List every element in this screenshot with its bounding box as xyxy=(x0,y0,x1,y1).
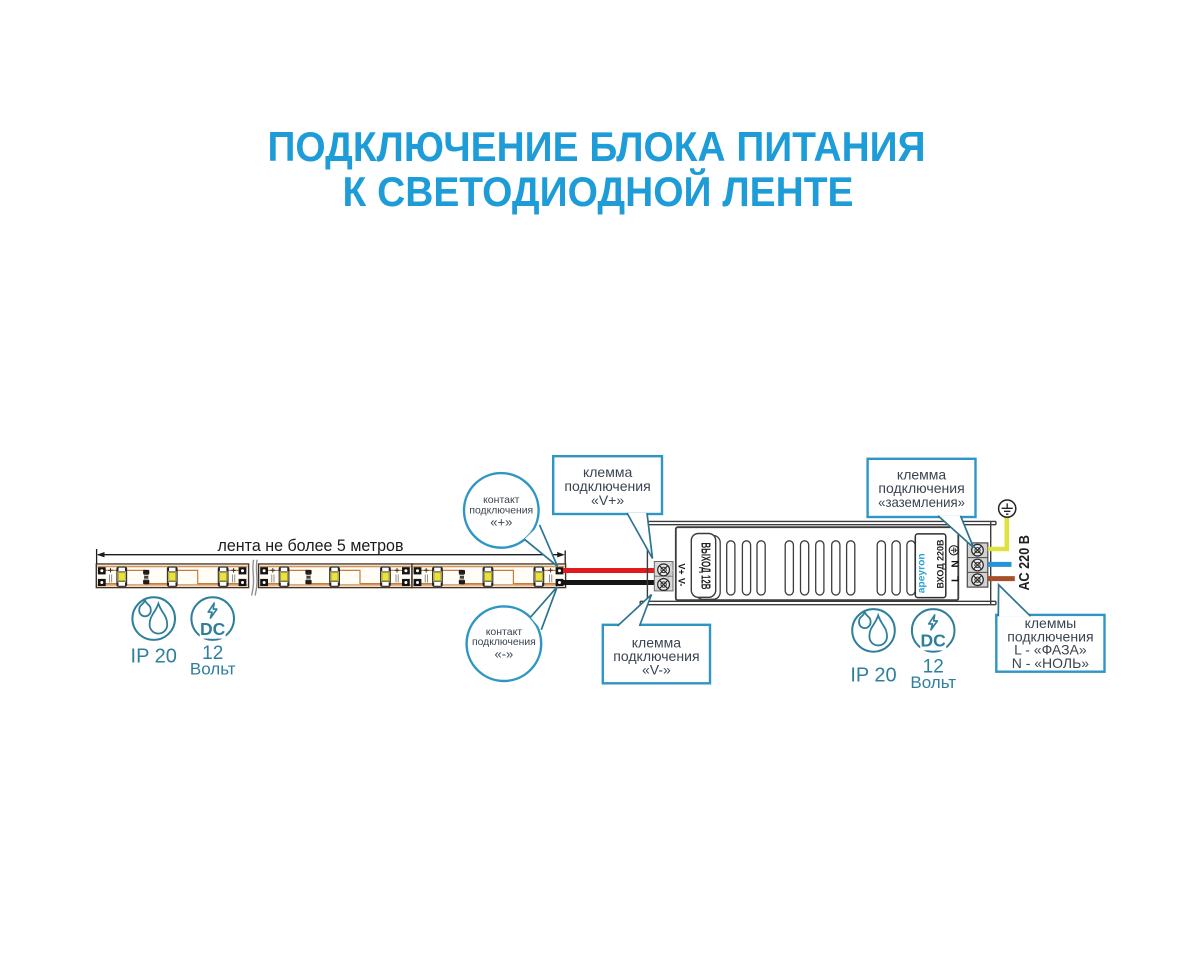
svg-text:ВЫХОД 12В: ВЫХОД 12В xyxy=(699,543,713,590)
svg-text:L: L xyxy=(950,576,961,582)
svg-text:«-»: «-» xyxy=(495,646,514,661)
svg-text:V+: V+ xyxy=(676,563,686,574)
svg-text:apeyron: apeyron xyxy=(916,553,928,593)
svg-text:IP 20: IP 20 xyxy=(850,665,896,687)
svg-text:«заземления»: «заземления» xyxy=(878,494,965,510)
svg-text:К СВЕТОДИОДНОЙ ЛЕНТЕ: К СВЕТОДИОДНОЙ ЛЕНТЕ xyxy=(343,167,854,215)
svg-text:ПОДКЛЮЧЕНИЕ БЛОКА ПИТАНИЯ: ПОДКЛЮЧЕНИЕ БЛОКА ПИТАНИЯ xyxy=(268,123,926,170)
svg-text:«+»: «+» xyxy=(490,515,512,530)
svg-text:N: N xyxy=(950,560,961,567)
svg-text:Вольт: Вольт xyxy=(190,660,236,679)
svg-text:«V-»: «V-» xyxy=(642,662,671,678)
svg-text:«V+»: «V+» xyxy=(591,492,624,508)
svg-text:DC: DC xyxy=(200,619,226,639)
svg-text:N - «НОЛЬ»: N - «НОЛЬ» xyxy=(1012,655,1090,671)
svg-text:V-: V- xyxy=(676,578,686,587)
svg-text:DC: DC xyxy=(921,631,947,651)
svg-text:IP 20: IP 20 xyxy=(131,646,177,668)
svg-text:АС 220 В: АС 220 В xyxy=(1017,535,1033,591)
svg-text:Вольт: Вольт xyxy=(910,673,956,692)
svg-text:ВХОД 220В: ВХОД 220В xyxy=(936,539,947,588)
svg-text:лента не более 5 метров: лента не более 5 метров xyxy=(218,536,404,555)
